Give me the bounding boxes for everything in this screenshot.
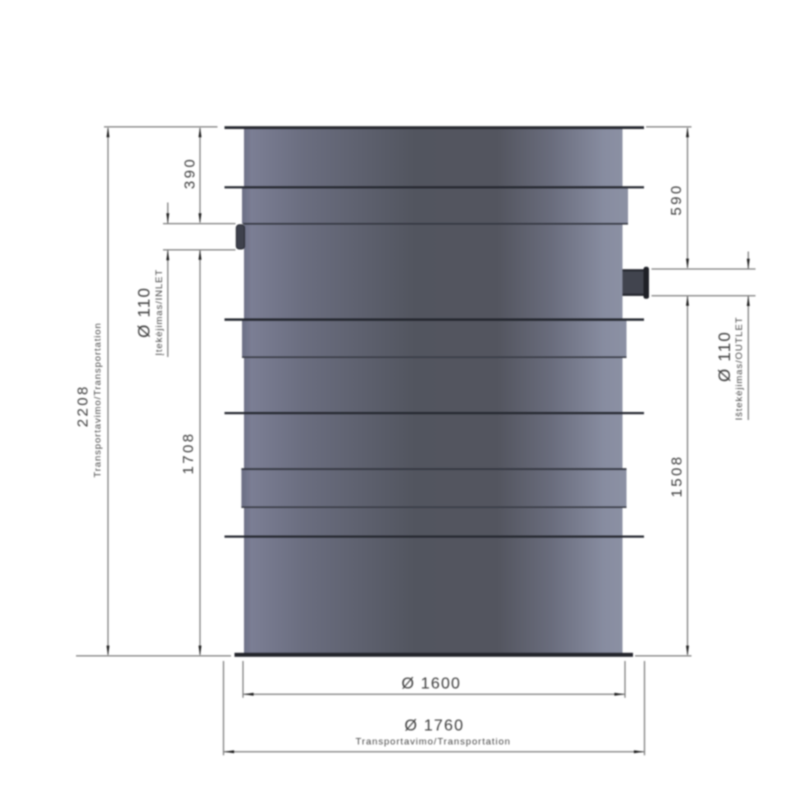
svg-text:Transportavimo/Transportation: Transportavimo/Transportation [356, 736, 511, 747]
svg-text:590: 590 [668, 183, 685, 215]
svg-text:Ø 110: Ø 110 [715, 331, 734, 382]
svg-text:Ø 110: Ø 110 [135, 287, 154, 338]
svg-text:390: 390 [182, 157, 199, 189]
svg-text:Ø 1600: Ø 1600 [401, 675, 461, 692]
svg-text:1708: 1708 [180, 432, 197, 475]
svg-text:2208: 2208 [75, 384, 92, 427]
svg-text:Įtekėjimas/INLET: Įtekėjimas/INLET [154, 269, 165, 356]
svg-text:Ištekėjimas/OUTLET: Ištekėjimas/OUTLET [734, 317, 745, 421]
svg-text:Transportavimo/Transportation: Transportavimo/Transportation [92, 322, 103, 477]
svg-text:Ø 1760: Ø 1760 [405, 718, 465, 735]
svg-text:1508: 1508 [668, 455, 685, 498]
